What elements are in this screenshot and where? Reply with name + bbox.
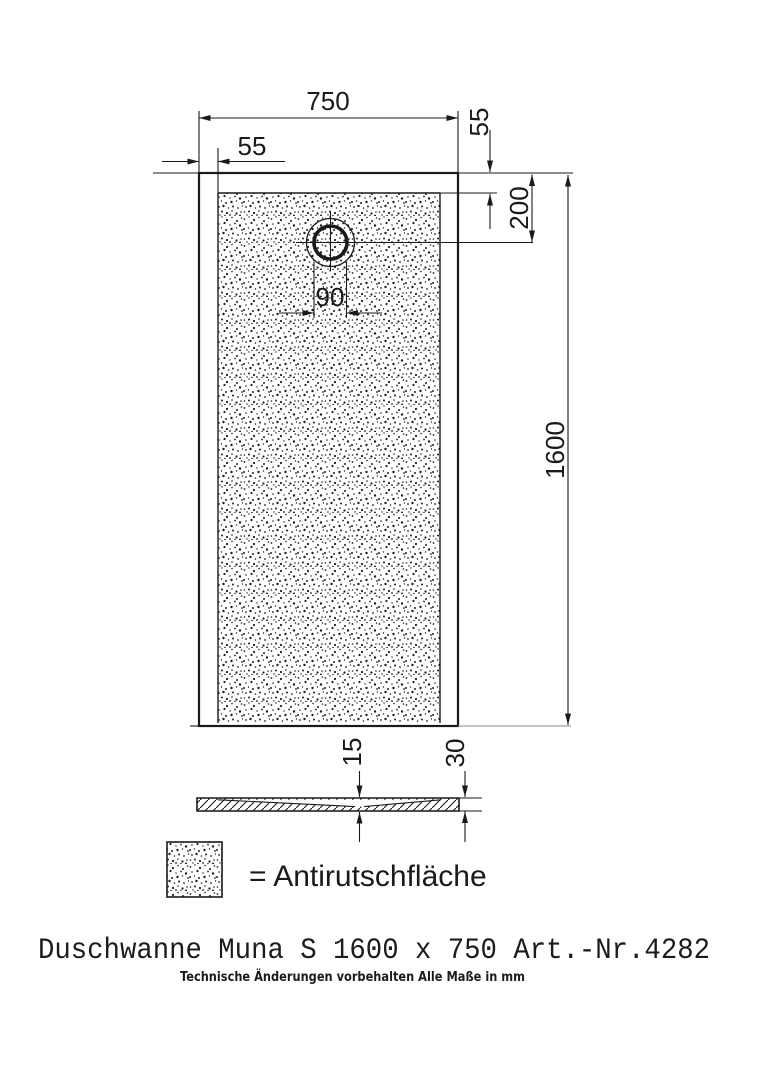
dim-drain-offset-label: 200 — [504, 186, 534, 229]
dim-rim-left: 55 — [162, 131, 285, 193]
drawing-sheet: 750 55 55 200 1600 90 15 — [0, 0, 763, 1080]
dim-depth-center-label: 15 — [337, 738, 367, 767]
legend: = Antirutschfläche — [167, 842, 487, 897]
plan-view — [153, 173, 573, 726]
technical-drawing: 750 55 55 200 1600 90 15 — [0, 0, 763, 1080]
drawing-title: Duschwanne Muna S 1600 x 750 Art.-Nr.428… — [38, 934, 710, 968]
dim-rim-left-label: 55 — [238, 131, 267, 161]
drawing-footnote: Technische Änderungen vorbehalten Alle M… — [180, 968, 525, 985]
legend-swatch — [167, 842, 222, 897]
dim-overall-length: 1600 — [540, 175, 570, 725]
antislip-area — [218, 193, 440, 723]
dim-rim-top-label: 55 — [464, 108, 494, 137]
dim-overall-length-label: 1600 — [540, 421, 570, 479]
section-view — [197, 798, 482, 811]
dim-overall-width-label: 750 — [306, 86, 349, 116]
dim-edge-height: 30 — [440, 739, 470, 842]
dim-rim-top: 55 — [440, 108, 497, 229]
dim-drain-offset: 200 — [504, 175, 534, 243]
dim-edge-height-label: 30 — [440, 739, 470, 768]
dim-depth-center: 15 — [337, 738, 367, 842]
dim-drain-diameter-label: 90 — [316, 282, 345, 312]
legend-label: = Antirutschfläche — [249, 860, 487, 893]
